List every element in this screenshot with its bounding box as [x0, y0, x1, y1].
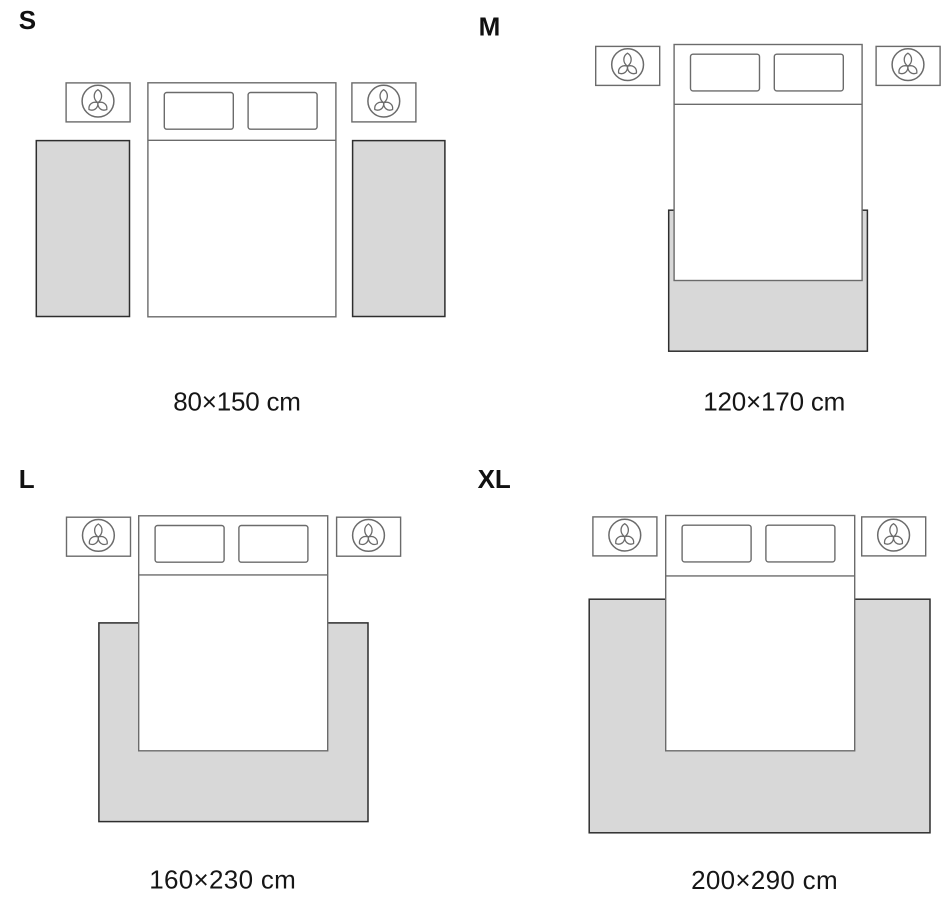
svg-text:200×290 cm: 200×290 cm [691, 865, 838, 895]
svg-text:S: S [19, 5, 36, 35]
svg-text:120×170 cm: 120×170 cm [703, 386, 845, 416]
svg-text:M: M [479, 11, 501, 41]
svg-text:160×230 cm: 160×230 cm [149, 865, 296, 895]
svg-text:XL: XL [478, 464, 511, 494]
svg-text:L: L [19, 464, 35, 494]
svg-text:80×150 cm: 80×150 cm [173, 386, 301, 416]
